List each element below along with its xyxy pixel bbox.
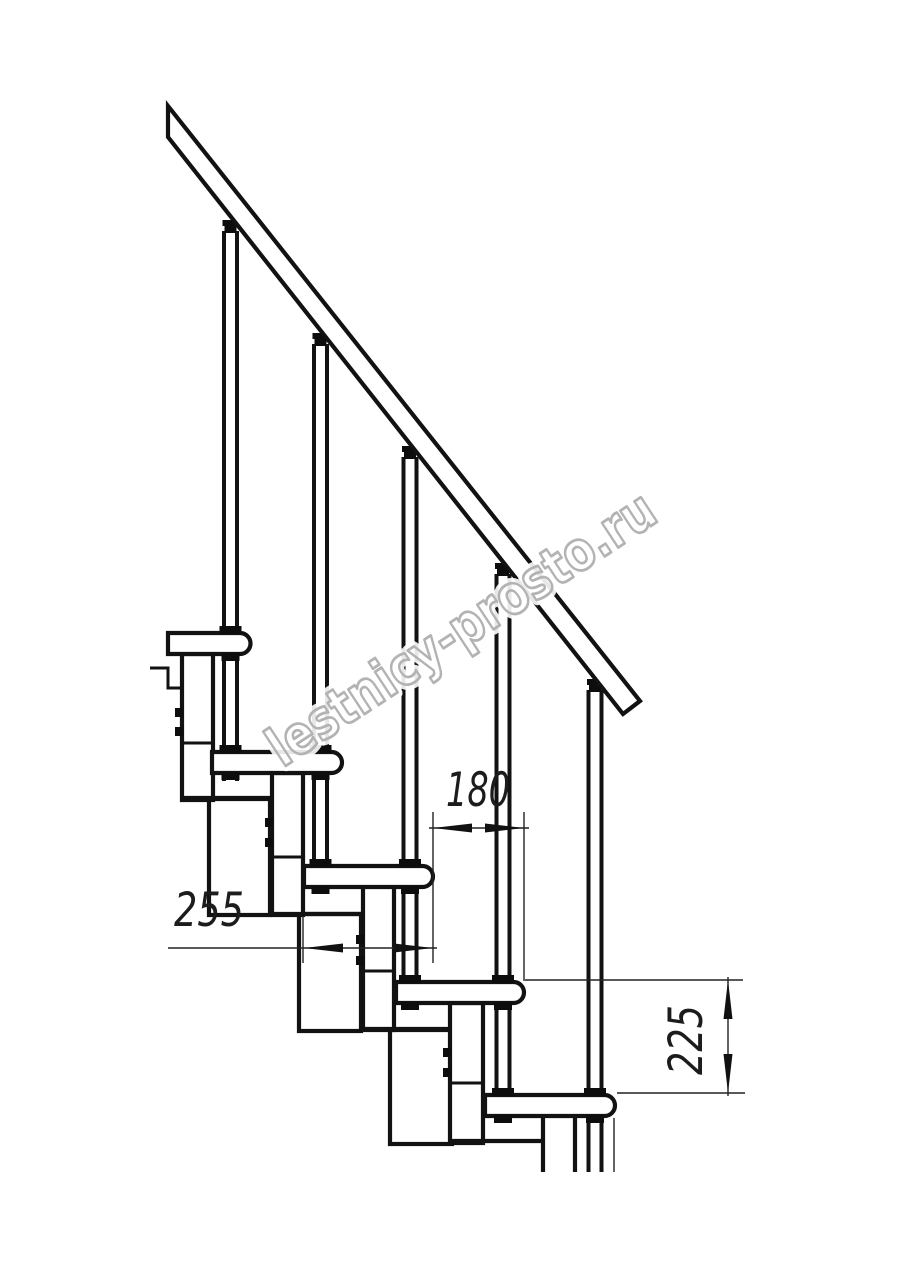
arrow-down-icon	[724, 1054, 733, 1093]
dimension-180: 180	[429, 763, 529, 981]
arrow-up-icon	[724, 980, 733, 1019]
modular-staircase-elevation-drawing: 180 255 225 lestnicy-prosto.ru lestnicy-…	[0, 0, 914, 1280]
column-connector-box	[390, 1030, 452, 1144]
tread-3	[304, 866, 433, 887]
dimension-225: 225	[525, 977, 745, 1096]
watermark: lestnicy-prosto.ru lestnicy-prosto.ru	[255, 478, 667, 779]
arrow-right-icon	[485, 824, 524, 833]
column-connector-box	[299, 914, 361, 1031]
support-column-1	[150, 654, 270, 915]
dimension-225-label: 225	[659, 1005, 714, 1075]
baluster-3	[402, 446, 418, 1009]
tread-4	[396, 982, 524, 1003]
column-box	[182, 654, 213, 800]
watermark-text: lestnicy-prosto.ru	[255, 478, 667, 779]
arrow-left-icon	[433, 824, 472, 833]
baluster-1	[223, 220, 239, 781]
baluster-4	[495, 563, 511, 1122]
support-column-4	[443, 1003, 543, 1143]
baluster-2	[313, 333, 329, 893]
column-box	[450, 1003, 483, 1143]
tread-5	[485, 1095, 615, 1116]
column-box	[363, 886, 394, 1030]
tread-1	[168, 633, 251, 654]
wall-bracket	[150, 668, 182, 688]
arrow-right-icon	[394, 944, 433, 953]
dimension-180-label: 180	[446, 763, 510, 818]
column-box	[272, 773, 303, 915]
stair-drawing-page: 180 255 225 lestnicy-prosto.ru lestnicy-…	[0, 0, 914, 1280]
dimension-255-label: 255	[174, 883, 244, 938]
